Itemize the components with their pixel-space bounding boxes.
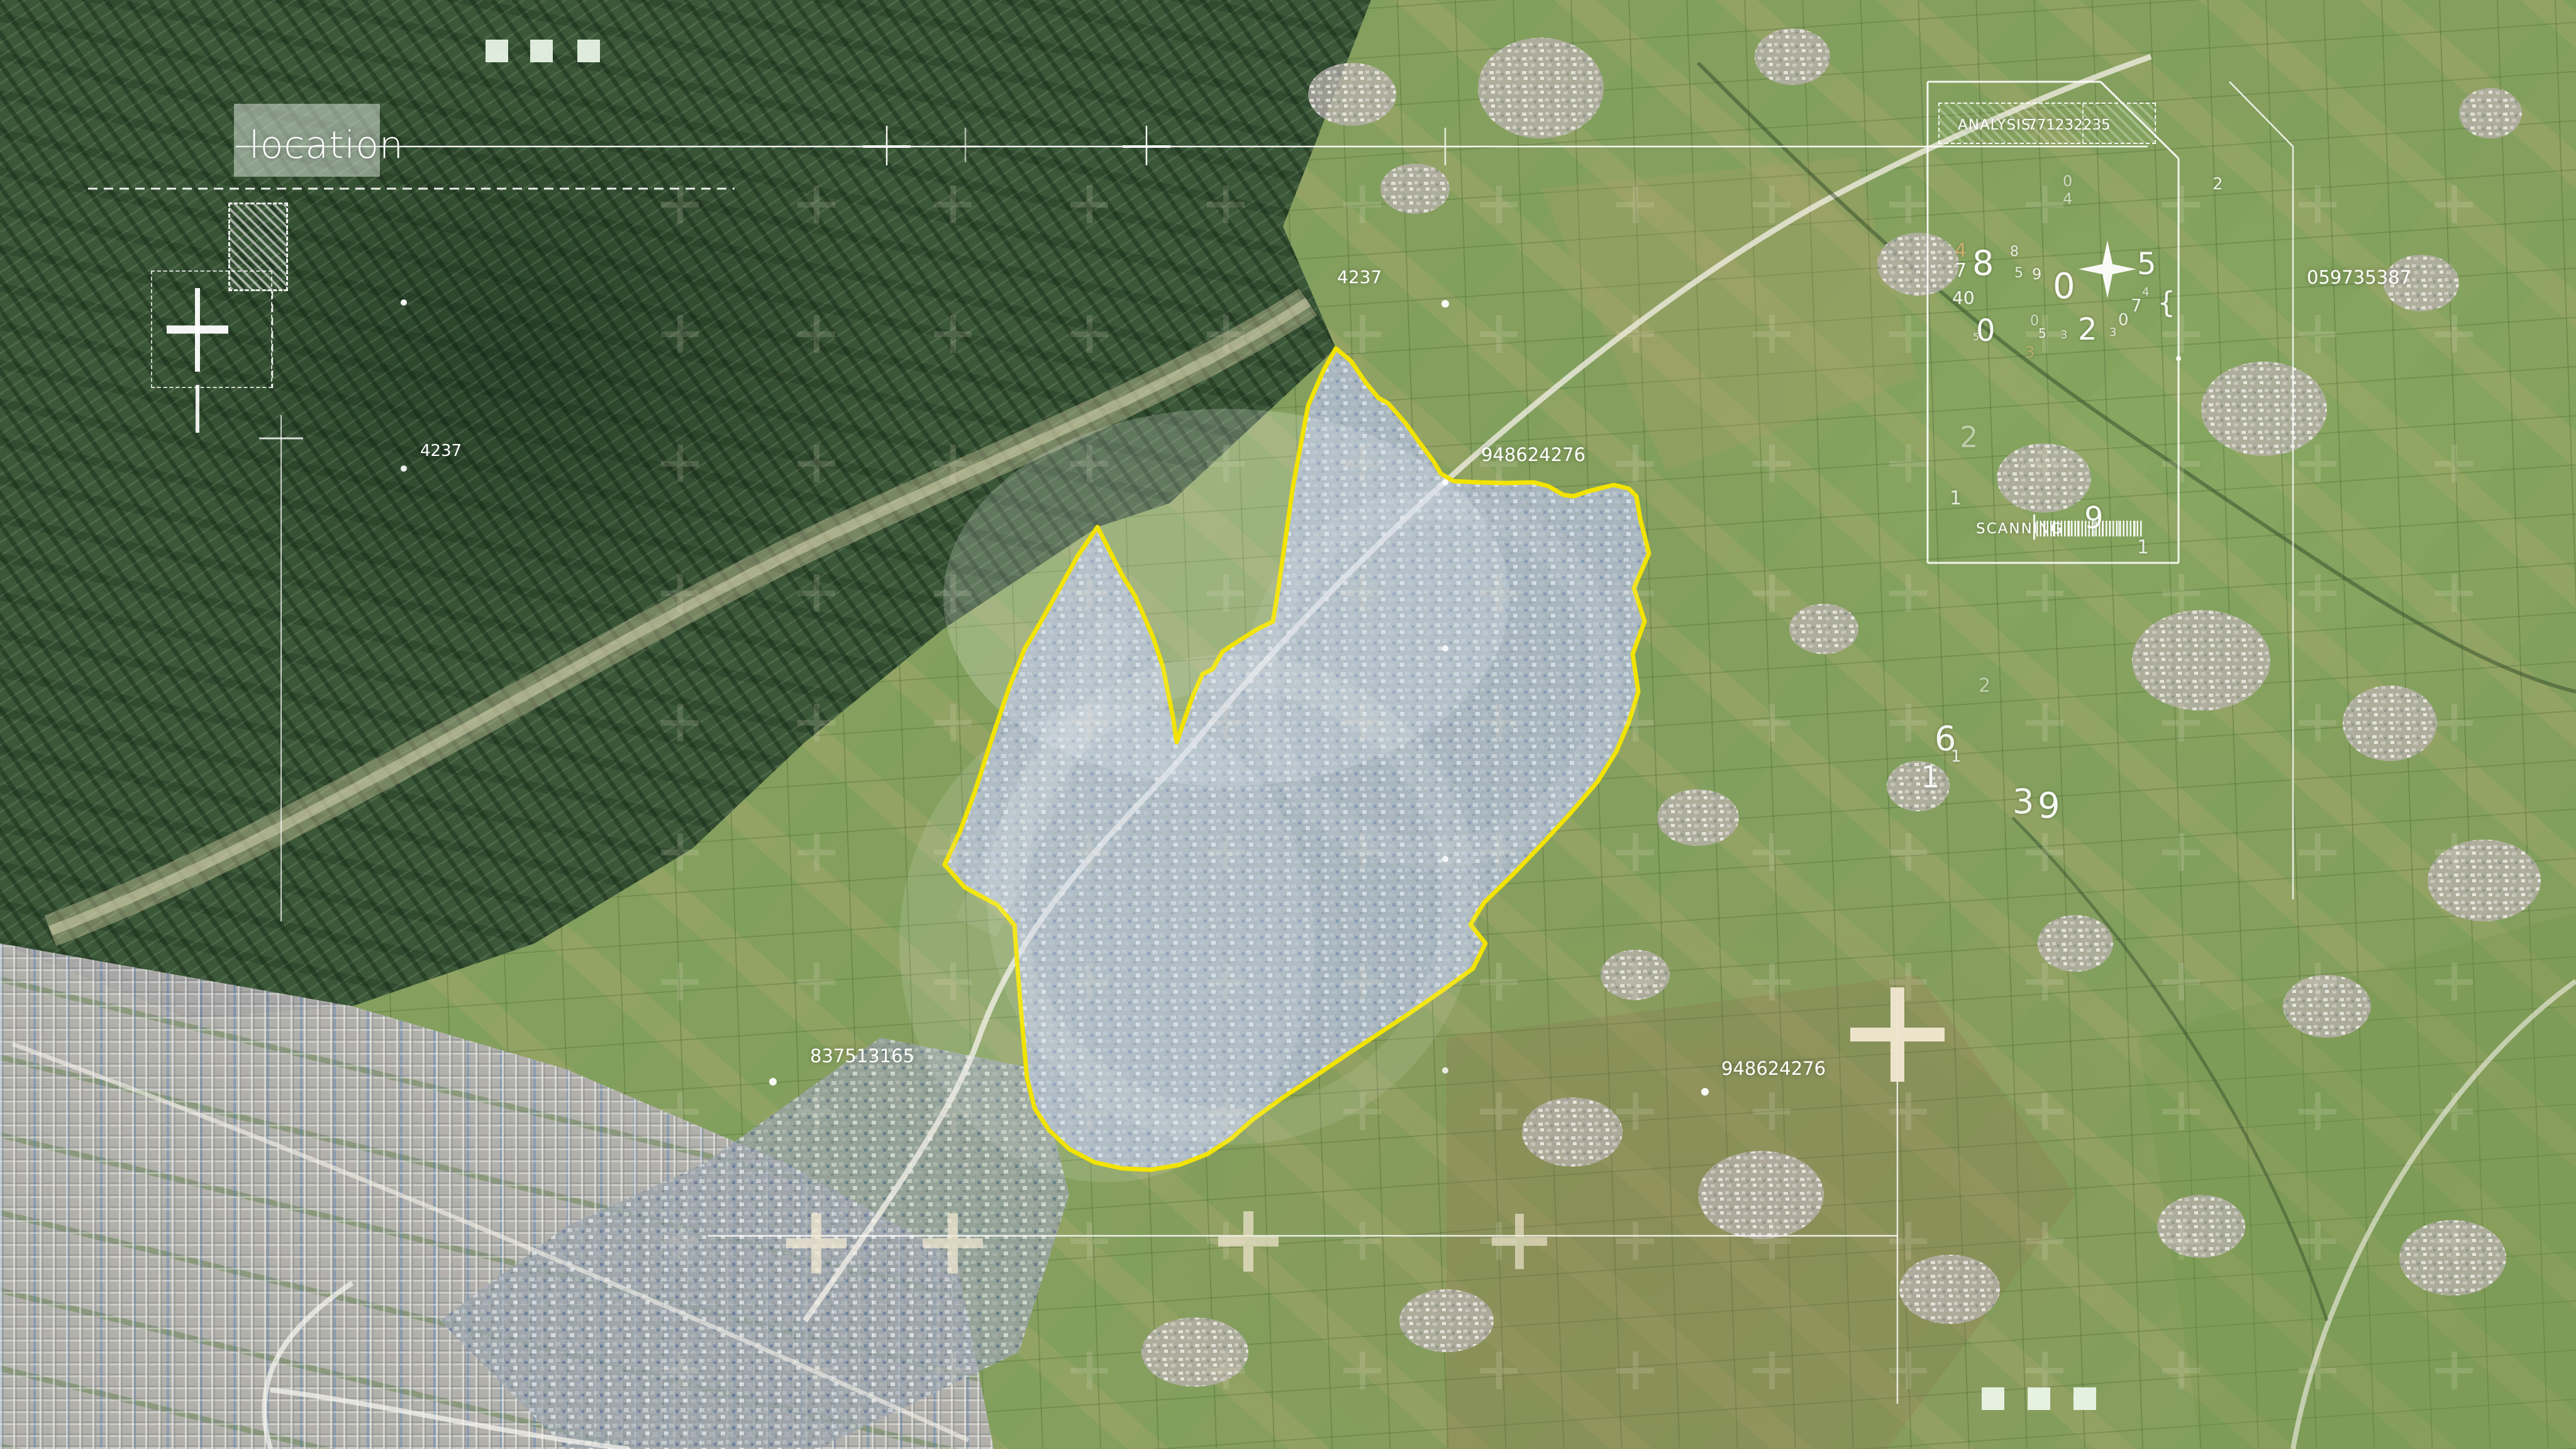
hud-square-marker	[2028, 1387, 2050, 1410]
plus-marker-icon	[1480, 1092, 1518, 1130]
plus-marker-icon	[797, 1352, 835, 1389]
plus-marker-icon	[1343, 186, 1381, 223]
plus-marker-icon	[1070, 1352, 1108, 1389]
plus-marker-icon	[1207, 186, 1245, 223]
plus-marker-icon	[1480, 445, 1518, 482]
scatter-digit: {	[2157, 288, 2175, 317]
plus-marker-icon	[2162, 963, 2200, 1001]
plus-marker-icon	[1343, 704, 1381, 741]
city-id-label: 837513165	[810, 1045, 914, 1067]
plus-marker-icon	[1889, 315, 1927, 353]
scatter-digit: 4	[2063, 191, 2072, 206]
plus-marker-icon	[2435, 574, 2473, 612]
scatter-digit: 7	[2131, 297, 2142, 314]
plus-marker-icon	[1480, 315, 1518, 353]
plus-marker-icon	[2299, 1222, 2336, 1260]
plus-marker-icon	[934, 315, 972, 353]
plus-marker-icon	[2162, 574, 2200, 612]
plus-marker-icon	[1070, 445, 1108, 482]
plus-marker-icon	[1616, 574, 1654, 612]
plus-marker-icon	[1616, 1092, 1654, 1130]
plus-marker-icon	[1889, 445, 1927, 482]
scatter-digit: 9	[2032, 267, 2041, 282]
plus-marker-icon	[661, 1222, 699, 1260]
scatter-digit: 0	[2053, 269, 2075, 304]
marker-dot	[1442, 479, 1448, 486]
plus-marker-icon	[1889, 833, 1927, 871]
plus-marker-icon	[2026, 1352, 2063, 1389]
plus-marker-icon	[2299, 1352, 2336, 1389]
plus-marker-icon	[797, 1222, 835, 1260]
plus-marker-icon	[2026, 963, 2063, 1001]
plus-marker-icon	[1889, 186, 1927, 223]
plus-marker-icon	[2162, 833, 2200, 871]
plus-marker-icon	[2299, 963, 2336, 1001]
plus-marker-icon	[1889, 704, 1927, 741]
scatter-digit: 1	[2137, 538, 2149, 557]
analysis-label: ANALYSIS.	[1958, 117, 2036, 133]
target-dashed-box	[151, 270, 272, 388]
plus-marker-icon	[2162, 1092, 2200, 1130]
plus-marker-icon	[2299, 1092, 2336, 1130]
watermark-ring	[1245, 491, 1623, 868]
plus-marker-icon	[661, 186, 699, 223]
plus-marker-icon	[1207, 315, 1245, 353]
hud-line	[2229, 82, 2293, 147]
scanning-barcode-tick	[2033, 514, 2035, 540]
marker-dot	[769, 1078, 777, 1085]
scatter-digit: 5	[1973, 332, 1979, 342]
plus-marker-icon	[1753, 1352, 1790, 1389]
plus-marker-icon	[661, 1092, 699, 1130]
plus-marker-icon	[1343, 445, 1381, 482]
plus-marker-icon	[934, 1352, 972, 1389]
plus-marker-icon	[2162, 315, 2200, 353]
marker-dot	[401, 465, 407, 472]
scatter-digit: 9	[2038, 789, 2060, 824]
plus-marker-icon	[2162, 1352, 2200, 1389]
scatter-digit: 4	[1955, 241, 1967, 260]
plus-marker-icon	[1070, 704, 1108, 741]
plus-marker-icon	[1889, 574, 1927, 612]
plus-marker-icon	[1753, 833, 1790, 871]
scatter-digit: 1	[1951, 748, 1962, 765]
plus-marker-icon	[797, 833, 835, 871]
plus-marker-icon	[1070, 186, 1108, 223]
hud-square-marker	[1982, 1387, 2004, 1410]
scatter-digit: 40	[1952, 289, 1975, 307]
scatter-digit: 2	[2078, 314, 2097, 345]
plus-marker-icon	[661, 963, 699, 1001]
plus-marker-icon	[1343, 1352, 1381, 1389]
plus-marker-icon	[934, 1092, 972, 1130]
scatter-digit: 0	[2063, 174, 2072, 189]
plus-marker-icon	[661, 704, 699, 741]
plus-marker-icon	[2026, 445, 2063, 482]
plus-marker-icon	[2299, 833, 2336, 871]
plus-marker-icon	[1343, 1092, 1381, 1130]
plus-marker-icon	[797, 315, 835, 353]
plus-marker-icon	[1616, 963, 1654, 1001]
marker-dot	[1441, 300, 1449, 308]
marker-dot	[401, 299, 407, 306]
hud-square-marker	[577, 40, 600, 62]
plus-marker-icon	[1207, 704, 1245, 741]
plus-marker-icon	[1207, 574, 1245, 612]
plus-marker-icon	[1207, 1352, 1245, 1389]
plus-marker-icon	[1343, 1222, 1381, 1260]
plus-marker-icon	[797, 445, 835, 482]
satellite-analysis-view: location ANALYSIS. 771232235 SCANNING 42…	[0, 0, 2576, 1449]
plus-marker-icon	[1753, 1222, 1790, 1260]
plus-marker-icon	[1616, 704, 1654, 741]
plus-marker-icon	[1616, 833, 1654, 871]
plus-marker-icon	[1480, 1222, 1518, 1260]
plus-marker-icon	[2162, 445, 2200, 482]
elevation-label-left: 4237	[420, 441, 462, 460]
plus-marker-icon	[2435, 445, 2473, 482]
plus-marker-icon	[1343, 963, 1381, 1001]
plus-marker-icon	[2162, 1222, 2200, 1260]
scatter-digit: 2	[1960, 423, 1978, 452]
plus-marker-icon	[2435, 1092, 2473, 1130]
plus-marker-icon	[2026, 1092, 2063, 1130]
scatter-digit: 3	[2109, 327, 2116, 338]
plus-marker-icon	[797, 574, 835, 612]
plus-marker-icon	[1753, 1092, 1790, 1130]
scatter-digit: 5	[2014, 267, 2023, 280]
plus-marker-icon	[1480, 1352, 1518, 1389]
plus-marker-icon	[934, 963, 972, 1001]
plus-marker-icon	[2026, 704, 2063, 741]
plus-marker-icon	[1889, 1222, 1927, 1260]
plus-marker-icon	[2026, 833, 2063, 871]
sparkle-star-icon	[2079, 240, 2136, 298]
plus-marker-icon	[2299, 574, 2336, 612]
plus-marker-icon	[1889, 963, 1927, 1001]
plus-marker-icon	[2162, 186, 2200, 223]
plus-marker-icon	[2435, 963, 2473, 1001]
scatter-digit: 1	[1921, 762, 1940, 792]
scatter-digit: 8	[1972, 247, 1994, 280]
plus-marker-icon	[661, 1352, 699, 1389]
plus-marker-icon	[661, 445, 699, 482]
plus-marker-icon	[1070, 315, 1108, 353]
plus-marker-icon	[1207, 1092, 1245, 1130]
scatter-digit: 1	[1950, 489, 1962, 508]
plus-marker-icon	[1207, 963, 1245, 1001]
marker-dot	[2176, 356, 2181, 361]
plus-marker-icon	[2026, 1222, 2063, 1260]
plus-marker-icon	[1343, 574, 1381, 612]
plus-marker-icon	[1070, 833, 1108, 871]
plus-marker-icon	[934, 833, 972, 871]
plus-marker-icon	[1616, 1222, 1654, 1260]
plus-marker-icon	[2299, 445, 2336, 482]
scatter-digit: 2	[2212, 176, 2223, 192]
plus-marker-icon	[1070, 1222, 1108, 1260]
plus-marker-icon	[2435, 315, 2473, 353]
plus-marker-icon	[1753, 315, 1790, 353]
scatter-digit: 4	[2142, 287, 2149, 298]
hud-square-marker	[2074, 1387, 2096, 1410]
scatter-digit: 3	[2012, 785, 2034, 819]
plus-marker-icon	[1616, 1352, 1654, 1389]
scatter-digit: 2	[1979, 677, 1990, 696]
plus-marker-icon	[1480, 963, 1518, 1001]
plus-marker-icon	[2435, 1352, 2473, 1389]
plus-marker-icon	[934, 186, 972, 223]
elevation-label-top: 4237	[1337, 267, 1382, 287]
analysis-code: 771232235	[2028, 117, 2111, 133]
plus-marker-icon	[1616, 445, 1654, 482]
scatter-digit: 0	[2118, 312, 2129, 328]
plus-marker-icon	[2299, 704, 2336, 741]
plus-marker-icon	[1070, 963, 1108, 1001]
plus-marker-icon	[1753, 186, 1790, 223]
plus-marker-icon	[1480, 186, 1518, 223]
location-title: location	[249, 123, 404, 167]
plus-marker-icon	[934, 445, 972, 482]
plus-marker-icon	[1070, 1092, 1108, 1130]
outer-id-label: 059735387	[2307, 267, 2411, 288]
plus-marker-icon	[797, 186, 835, 223]
plus-marker-icon	[661, 833, 699, 871]
plus-marker-icon	[1207, 445, 1245, 482]
plus-marker-icon	[1850, 987, 1945, 1082]
plus-marker-icon	[2026, 315, 2063, 353]
scatter-digit: 9	[2084, 503, 2104, 533]
plus-marker-icon	[2026, 574, 2063, 612]
plus-marker-icon	[661, 574, 699, 612]
plus-marker-icon	[1753, 963, 1790, 1001]
plus-marker-icon	[2435, 186, 2473, 223]
plus-marker-icon	[1207, 1222, 1245, 1260]
plus-marker-icon	[2162, 704, 2200, 741]
scatter-digit: 5	[2137, 249, 2157, 279]
plus-marker-icon	[2435, 704, 2473, 741]
plus-marker-icon	[1889, 1092, 1927, 1130]
plus-marker-icon	[797, 1092, 835, 1130]
plus-marker-icon	[1753, 445, 1790, 482]
plus-marker-icon	[797, 704, 835, 741]
plus-marker-icon	[1343, 315, 1381, 353]
plus-marker-icon	[1480, 574, 1518, 612]
plus-marker-icon	[2435, 833, 2473, 871]
plus-marker-icon	[1070, 574, 1108, 612]
plus-marker-icon	[797, 963, 835, 1001]
region-id-label-right: 948624276	[1721, 1058, 1826, 1079]
scatter-digit: 7	[1955, 262, 1967, 280]
plus-marker-icon	[2299, 315, 2336, 353]
hud-square-marker	[486, 40, 508, 62]
plus-marker-icon	[1616, 315, 1654, 353]
plus-marker-icon	[934, 1222, 972, 1260]
plus-marker-icon	[1480, 704, 1518, 741]
marker-dot	[1701, 1088, 1709, 1096]
plus-marker-icon	[1889, 1352, 1927, 1389]
marker-dot	[1442, 1067, 1448, 1074]
plus-marker-icon	[2435, 1222, 2473, 1260]
plus-marker-icon	[1616, 186, 1654, 223]
hud-square-marker	[530, 40, 553, 62]
plus-marker-icon	[1753, 704, 1790, 741]
scatter-digit: 8	[2010, 245, 2019, 259]
plus-marker-icon	[1343, 833, 1381, 871]
plus-marker-icon	[2299, 186, 2336, 223]
plus-marker-icon	[934, 574, 972, 612]
plus-marker-icon	[1207, 833, 1245, 871]
plus-marker-icon	[1753, 574, 1790, 612]
plus-marker-icon	[2026, 186, 2063, 223]
plus-marker-icon	[661, 315, 699, 353]
plus-marker-icon	[1480, 833, 1518, 871]
plus-marker-icon	[934, 704, 972, 741]
